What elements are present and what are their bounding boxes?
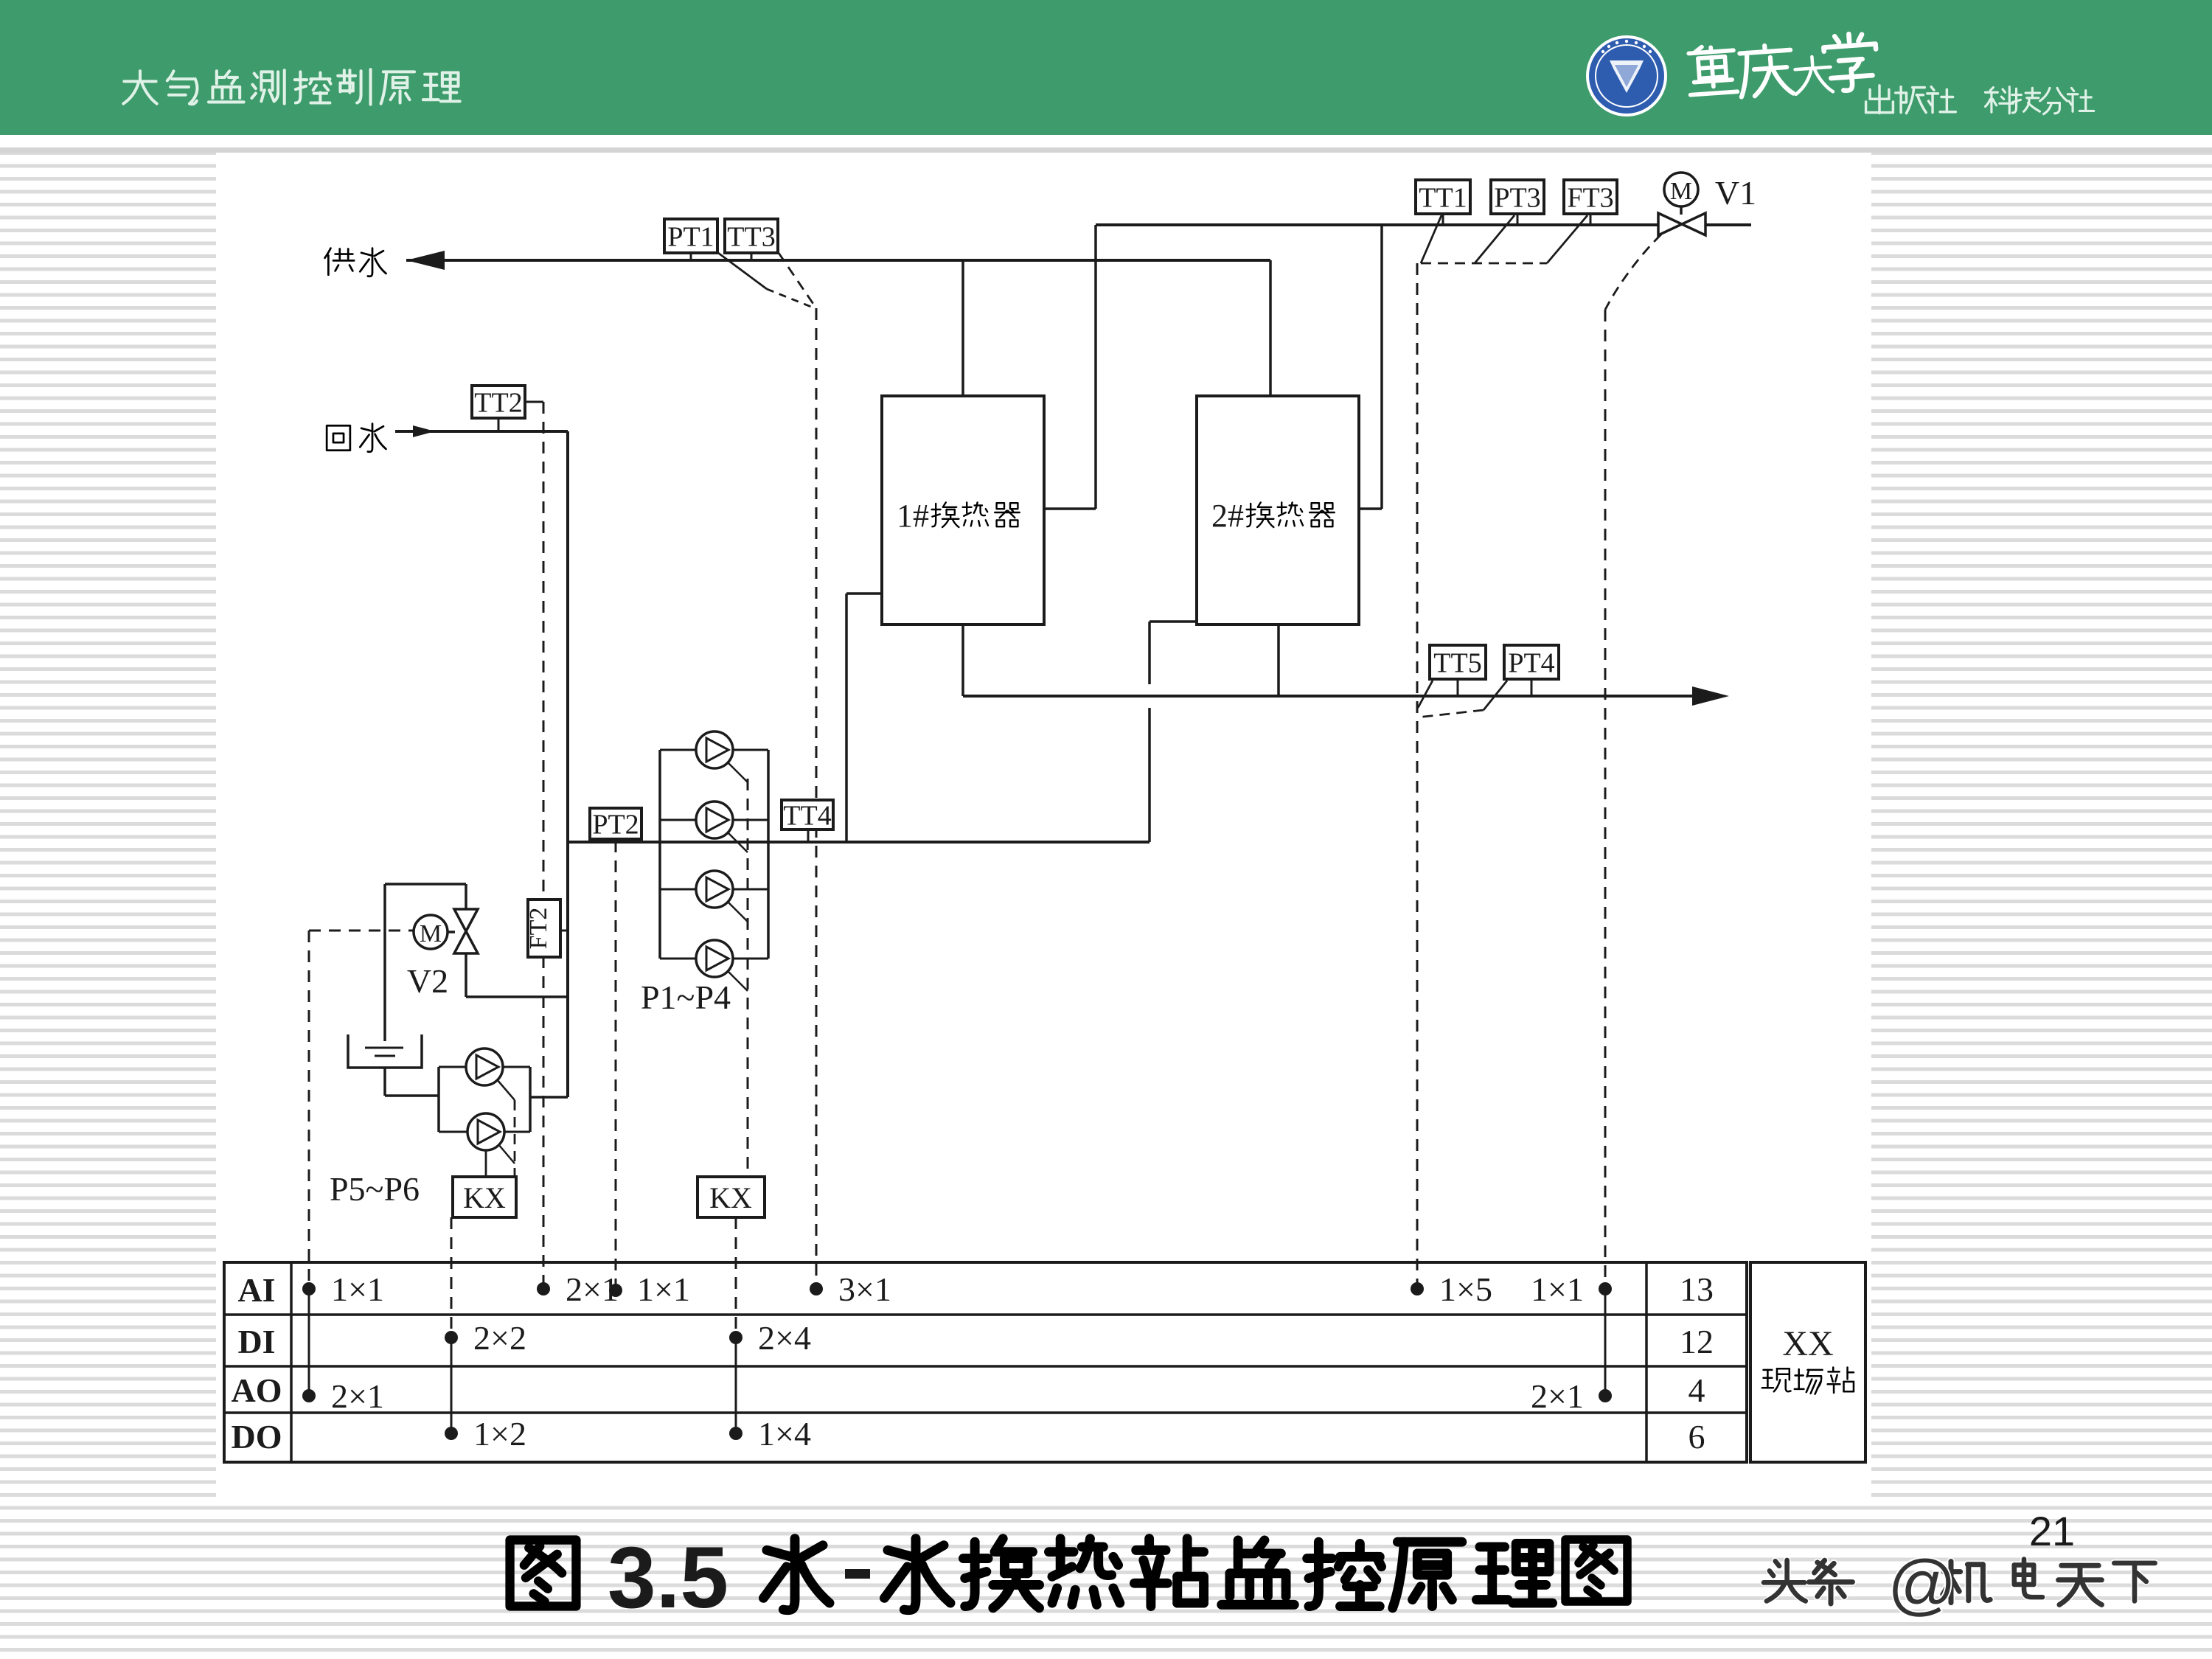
- svg-text:2×1: 2×1: [1531, 1377, 1584, 1415]
- svg-text:1×1: 1×1: [331, 1270, 384, 1308]
- svg-text:KX: KX: [463, 1181, 506, 1214]
- svg-text:2×2: 2×2: [473, 1319, 526, 1357]
- svg-text:1#: 1#: [897, 498, 929, 534]
- svg-text:3.5: 3.5: [608, 1529, 728, 1627]
- svg-text:1×4: 1×4: [758, 1415, 811, 1453]
- svg-text:AI: AI: [237, 1271, 275, 1309]
- svg-text:DO: DO: [232, 1418, 282, 1455]
- svg-text:4: 4: [1688, 1371, 1705, 1409]
- svg-text:TT5: TT5: [1433, 648, 1481, 679]
- svg-text:12: 12: [1680, 1323, 1714, 1360]
- svg-text:M: M: [420, 920, 442, 947]
- svg-text:TT3: TT3: [727, 222, 775, 253]
- svg-text:FT2: FT2: [525, 908, 552, 950]
- svg-text:KX: KX: [709, 1181, 752, 1214]
- svg-text:XX: XX: [1782, 1324, 1833, 1363]
- svg-text:13: 13: [1680, 1270, 1714, 1308]
- svg-text:2×1: 2×1: [331, 1377, 384, 1415]
- svg-text:21: 21: [2029, 1508, 2075, 1554]
- svg-text:DI: DI: [237, 1323, 275, 1360]
- svg-text:P1~P4: P1~P4: [641, 978, 731, 1016]
- svg-text:M: M: [1670, 178, 1692, 205]
- svg-text:3×1: 3×1: [838, 1270, 891, 1308]
- svg-text:PT4: PT4: [1508, 648, 1554, 679]
- svg-text:AO: AO: [232, 1371, 282, 1409]
- svg-text:1×1: 1×1: [1531, 1270, 1584, 1308]
- svg-text:2#: 2#: [1211, 498, 1244, 534]
- svg-text:6: 6: [1688, 1418, 1705, 1455]
- svg-text:1×5: 1×5: [1439, 1270, 1492, 1308]
- svg-text:TT1: TT1: [1419, 183, 1467, 214]
- svg-text:P5~P6: P5~P6: [330, 1170, 420, 1208]
- svg-text:PT3: PT3: [1494, 183, 1540, 214]
- svg-text:V2: V2: [407, 962, 448, 1000]
- svg-text:1×1: 1×1: [637, 1270, 690, 1308]
- svg-text:FT3: FT3: [1567, 183, 1613, 214]
- svg-text:V1: V1: [1715, 174, 1756, 212]
- svg-text:2×4: 2×4: [758, 1319, 811, 1357]
- svg-text:@: @: [1888, 1547, 1956, 1622]
- svg-text:PT2: PT2: [592, 810, 639, 841]
- svg-text:TT4: TT4: [783, 801, 831, 832]
- svg-text:1×2: 1×2: [473, 1415, 526, 1453]
- svg-text:TT2: TT2: [474, 388, 522, 419]
- svg-text:PT1: PT1: [667, 222, 714, 253]
